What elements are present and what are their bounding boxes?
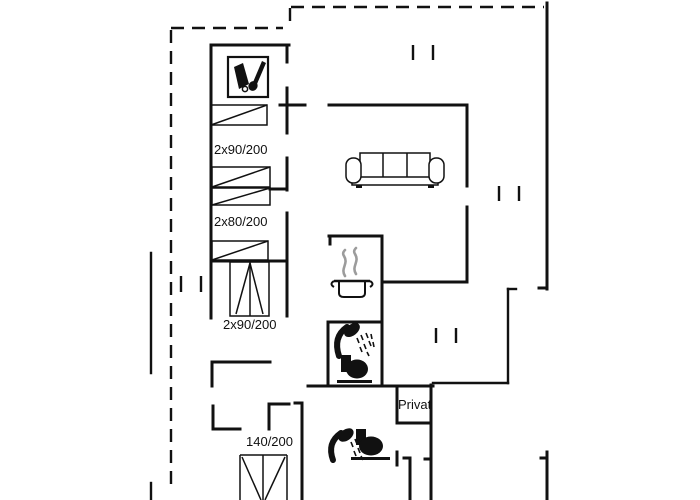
bed-size-label-1: 2x90/200 (214, 142, 268, 157)
plan-background (0, 0, 700, 500)
floor-plan-svg: 2x90/200 2x80/200 2x90/200 140/200 Priva… (0, 0, 700, 500)
bed-size-label-3: 2x90/200 (223, 317, 277, 332)
sofa-icon (346, 153, 444, 188)
bed-size-label-2: 2x80/200 (214, 214, 268, 229)
floor-plan-page: 2x90/200 2x80/200 2x90/200 140/200 Priva… (0, 0, 700, 500)
bed-size-label-4: 140/200 (246, 434, 293, 449)
private-room-label: Privat (398, 397, 432, 412)
